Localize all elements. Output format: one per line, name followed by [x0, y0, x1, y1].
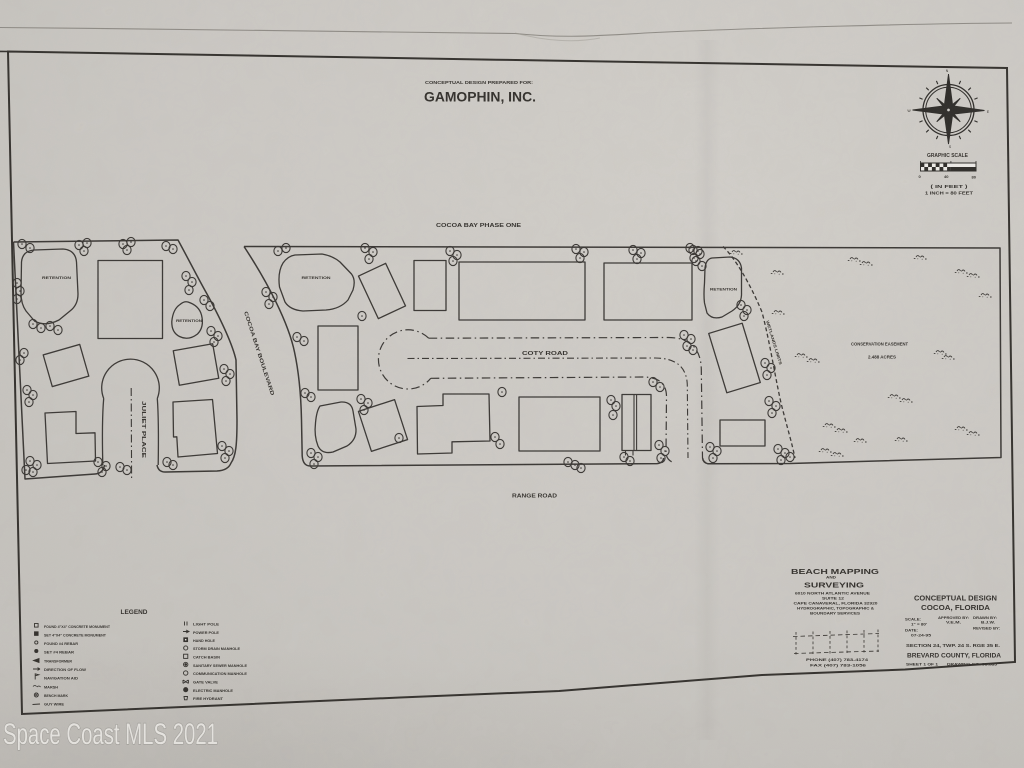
svg-text:PHONE (407) 783-4174: PHONE (407) 783-4174 — [806, 657, 869, 662]
svg-text:RETENTION: RETENTION — [302, 275, 331, 280]
svg-text:DIRECTION OF FLOW: DIRECTION OF FLOW — [44, 668, 86, 672]
svg-text:DRAWN BY:: DRAWN BY: — [973, 616, 997, 620]
svg-text:BENCH MARK: BENCH MARK — [44, 694, 68, 698]
svg-text:RETENTION: RETENTION — [42, 275, 71, 280]
svg-text:SET 4"X4" CONCRETE MONUMENT: SET 4"X4" CONCRETE MONUMENT — [44, 633, 107, 637]
svg-text:1" = 80': 1" = 80' — [911, 623, 927, 627]
svg-text:GATE VALVE: GATE VALVE — [193, 681, 218, 685]
svg-text:FAX (407) 783-1056: FAX (407) 783-1056 — [810, 663, 867, 668]
svg-text:HYDROGRAPHIC, TOPOGRAPHIC &: HYDROGRAPHIC, TOPOGRAPHIC & — [797, 607, 874, 611]
svg-text:CONCEPTUAL DESIGN PREPARED FOR: CONCEPTUAL DESIGN PREPARED FOR: — [425, 80, 534, 85]
svg-text:GRAPHIC SCALE: GRAPHIC SCALE — [927, 153, 969, 159]
svg-text:GUY WIRE: GUY WIRE — [44, 703, 64, 707]
svg-text:SHEET 1 OF 1: SHEET 1 OF 1 — [906, 663, 938, 667]
svg-text:JULIET PLACE: JULIET PLACE — [140, 401, 146, 459]
svg-text:STORM DRAIN MANHOLE: STORM DRAIN MANHOLE — [193, 647, 240, 651]
svg-text:SCALE:: SCALE: — [905, 618, 921, 622]
svg-text:COMMUNICATION MANHOLE: COMMUNICATION MANHOLE — [193, 672, 247, 676]
svg-text:COCOA, FLORIDA: COCOA, FLORIDA — [921, 605, 990, 612]
svg-text:TRANSFORMER: TRANSFORMER — [44, 660, 72, 664]
svg-text:CATCH BASIN: CATCH BASIN — [193, 656, 220, 660]
svg-text:AND: AND — [826, 576, 837, 580]
svg-text:B.J.W.: B.J.W. — [981, 621, 995, 625]
svg-text:LIGHT POLE: LIGHT POLE — [193, 623, 220, 627]
svg-text:GAMOPHIN, INC.: GAMOPHIN, INC. — [424, 90, 536, 105]
svg-text:1 INCH = 80 FEET: 1 INCH = 80 FEET — [925, 191, 973, 196]
svg-text:CONCEPTUAL DESIGN: CONCEPTUAL DESIGN — [914, 596, 997, 603]
svg-text:LEGEND: LEGEND — [121, 609, 149, 616]
svg-text:2.488 ACRES: 2.488 ACRES — [868, 355, 896, 360]
svg-text:CAPE CANAVERAL, FLORIDA 32920: CAPE CANAVERAL, FLORIDA 32920 — [794, 602, 878, 606]
svg-text:07-24-95: 07-24-95 — [911, 634, 931, 638]
svg-text:Space Coast MLS 2021: Space Coast MLS 2021 — [3, 718, 218, 751]
svg-text:( IN FEET ): ( IN FEET ) — [931, 184, 969, 189]
svg-text:SANITARY SEWER MANHOLE: SANITARY SEWER MANHOLE — [193, 664, 247, 668]
svg-text:MARSH: MARSH — [44, 686, 58, 690]
svg-text:HAND HOLE: HAND HOLE — [193, 639, 215, 643]
svg-text:RETENTION: RETENTION — [710, 287, 737, 292]
svg-text:SECTION 24, TWP. 24 S. RGE 35: SECTION 24, TWP. 24 S. RGE 35 E. — [906, 643, 1000, 649]
svg-text:DATE:: DATE: — [905, 629, 918, 633]
svg-text:CONSERVATION EASEMENT: CONSERVATION EASEMENT — [851, 342, 908, 347]
svg-text:BREVARD COUNTY, FLORIDA: BREVARD COUNTY, FLORIDA — [907, 653, 1001, 660]
svg-text:SURVEYING: SURVEYING — [804, 581, 864, 590]
svg-text:SUITE 12: SUITE 12 — [822, 597, 844, 601]
svg-text:FIRE HYDRANT: FIRE HYDRANT — [193, 697, 224, 701]
svg-text:6010 NORTH ATLANTIC AVENUE: 6010 NORTH ATLANTIC AVENUE — [795, 592, 871, 596]
svg-text:APPROVED BY:: APPROVED BY: — [938, 616, 969, 620]
svg-text:V.E.M.: V.E.M. — [946, 621, 961, 625]
svg-text:RETENTION: RETENTION — [176, 319, 203, 323]
svg-text:REVISED BY:: REVISED BY: — [973, 627, 1000, 631]
svg-text:RANGE ROAD: RANGE ROAD — [512, 494, 557, 500]
svg-text:POWER POLE: POWER POLE — [193, 631, 219, 635]
svg-text:BOUNDARY SERVICES: BOUNDARY SERVICES — [810, 612, 861, 616]
svg-text:FOUND 4"X4" CONCRETE MONUMENT: FOUND 4"X4" CONCRETE MONUMENT — [44, 625, 111, 629]
svg-text:FOUND #4 REBAR: FOUND #4 REBAR — [44, 642, 78, 646]
svg-text:NAVIGATION AID: NAVIGATION AID — [44, 677, 78, 681]
svg-text:COTY ROAD: COTY ROAD — [522, 351, 569, 357]
svg-text:40: 40 — [944, 174, 949, 179]
svg-text:COCOA BAY PHASE ONE: COCOA BAY PHASE ONE — [436, 223, 522, 229]
svg-text:ELECTRIC MANHOLE: ELECTRIC MANHOLE — [193, 689, 233, 693]
svg-text:80: 80 — [972, 175, 977, 180]
svg-text:SET #4 REBAR: SET #4 REBAR — [44, 651, 74, 655]
svg-text:DRAWING NO. 95.685: DRAWING NO. 95.685 — [947, 663, 997, 667]
